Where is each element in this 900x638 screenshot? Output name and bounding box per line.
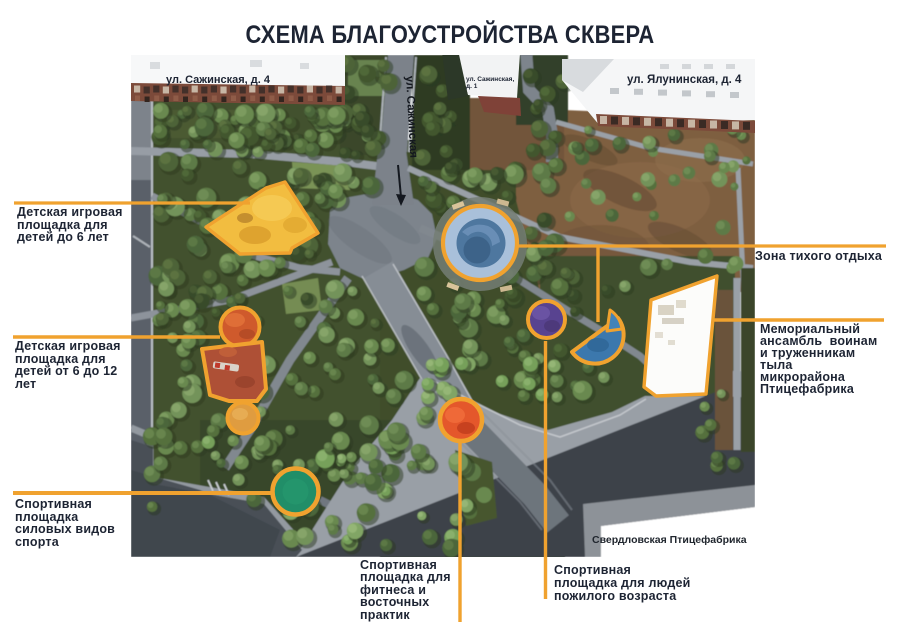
svg-text:ул. Сажинская, д. 4: ул. Сажинская, д. 4	[166, 74, 271, 86]
svg-text:д. 1: д. 1	[466, 83, 478, 90]
svg-text:Свердловская Птицефабрика: Свердловская Птицефабрика	[592, 534, 747, 546]
svg-text:ул. Сажинская,: ул. Сажинская,	[466, 76, 514, 83]
svg-text:ул. Ялунинская, д. 4: ул. Ялунинская, д. 4	[627, 74, 742, 86]
